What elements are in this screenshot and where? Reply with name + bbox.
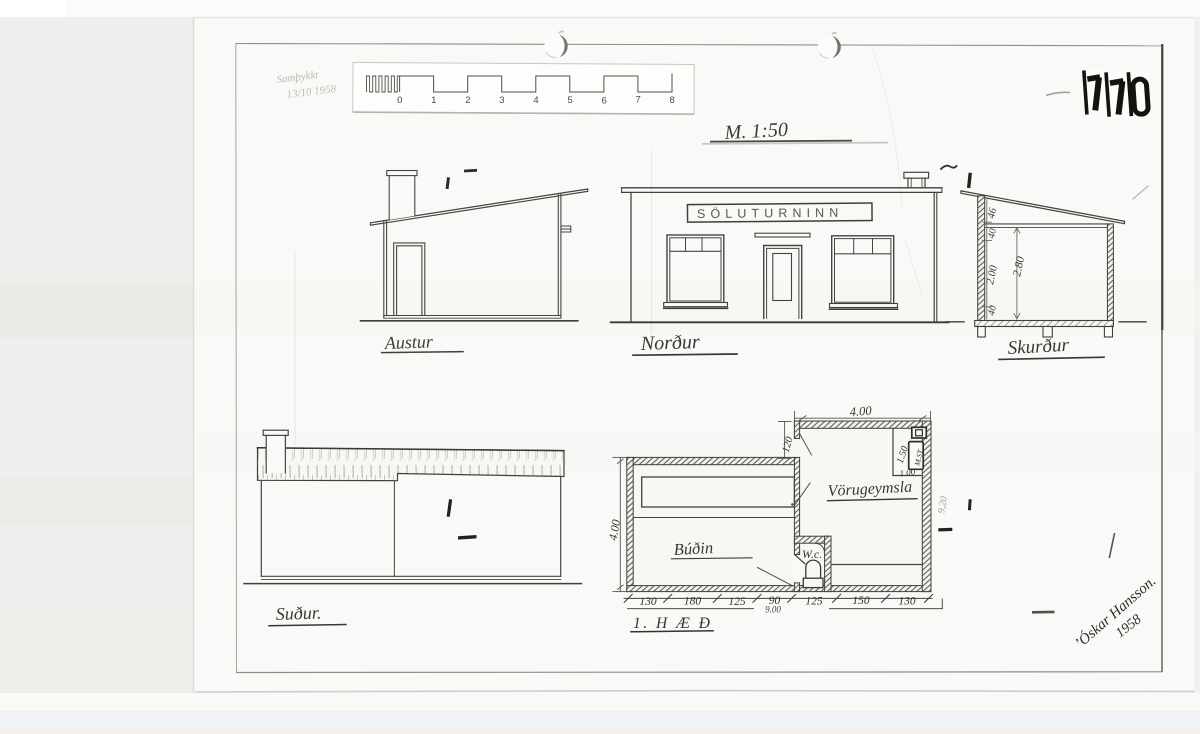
svg-text:125: 125 [728, 596, 746, 608]
svg-text:SÖLUTURNINN: SÖLUTURNINN [697, 206, 844, 221]
svg-text:7: 7 [635, 94, 640, 105]
svg-text:Norður: Norður [639, 331, 700, 355]
svg-text:Búðin: Búðin [673, 538, 713, 559]
svg-text:1: 1 [431, 95, 436, 106]
svg-text:6: 6 [601, 96, 606, 107]
svg-text:9.00: 9.00 [765, 605, 781, 615]
svg-text:Skurður: Skurður [1007, 335, 1070, 359]
svg-text:Austur: Austur [383, 331, 434, 353]
svg-text:4: 4 [533, 95, 538, 106]
svg-text:130: 130 [639, 596, 657, 608]
svg-text:180: 180 [684, 596, 702, 608]
svg-text:Suður.: Suður. [275, 602, 321, 624]
svg-text:1. H Æ Ð: 1. H Æ Ð [633, 615, 712, 632]
svg-text:8: 8 [670, 95, 675, 106]
svg-text:4.00: 4.00 [849, 403, 873, 419]
svg-text:150: 150 [852, 595, 870, 607]
svg-text:5: 5 [567, 95, 572, 106]
svg-text:2: 2 [465, 95, 470, 106]
svg-text:125: 125 [805, 596, 823, 608]
svg-text:W.c.: W.c. [802, 547, 822, 561]
svg-text:0: 0 [397, 95, 402, 106]
svg-text:130: 130 [898, 596, 916, 608]
svg-text:3: 3 [499, 95, 504, 106]
